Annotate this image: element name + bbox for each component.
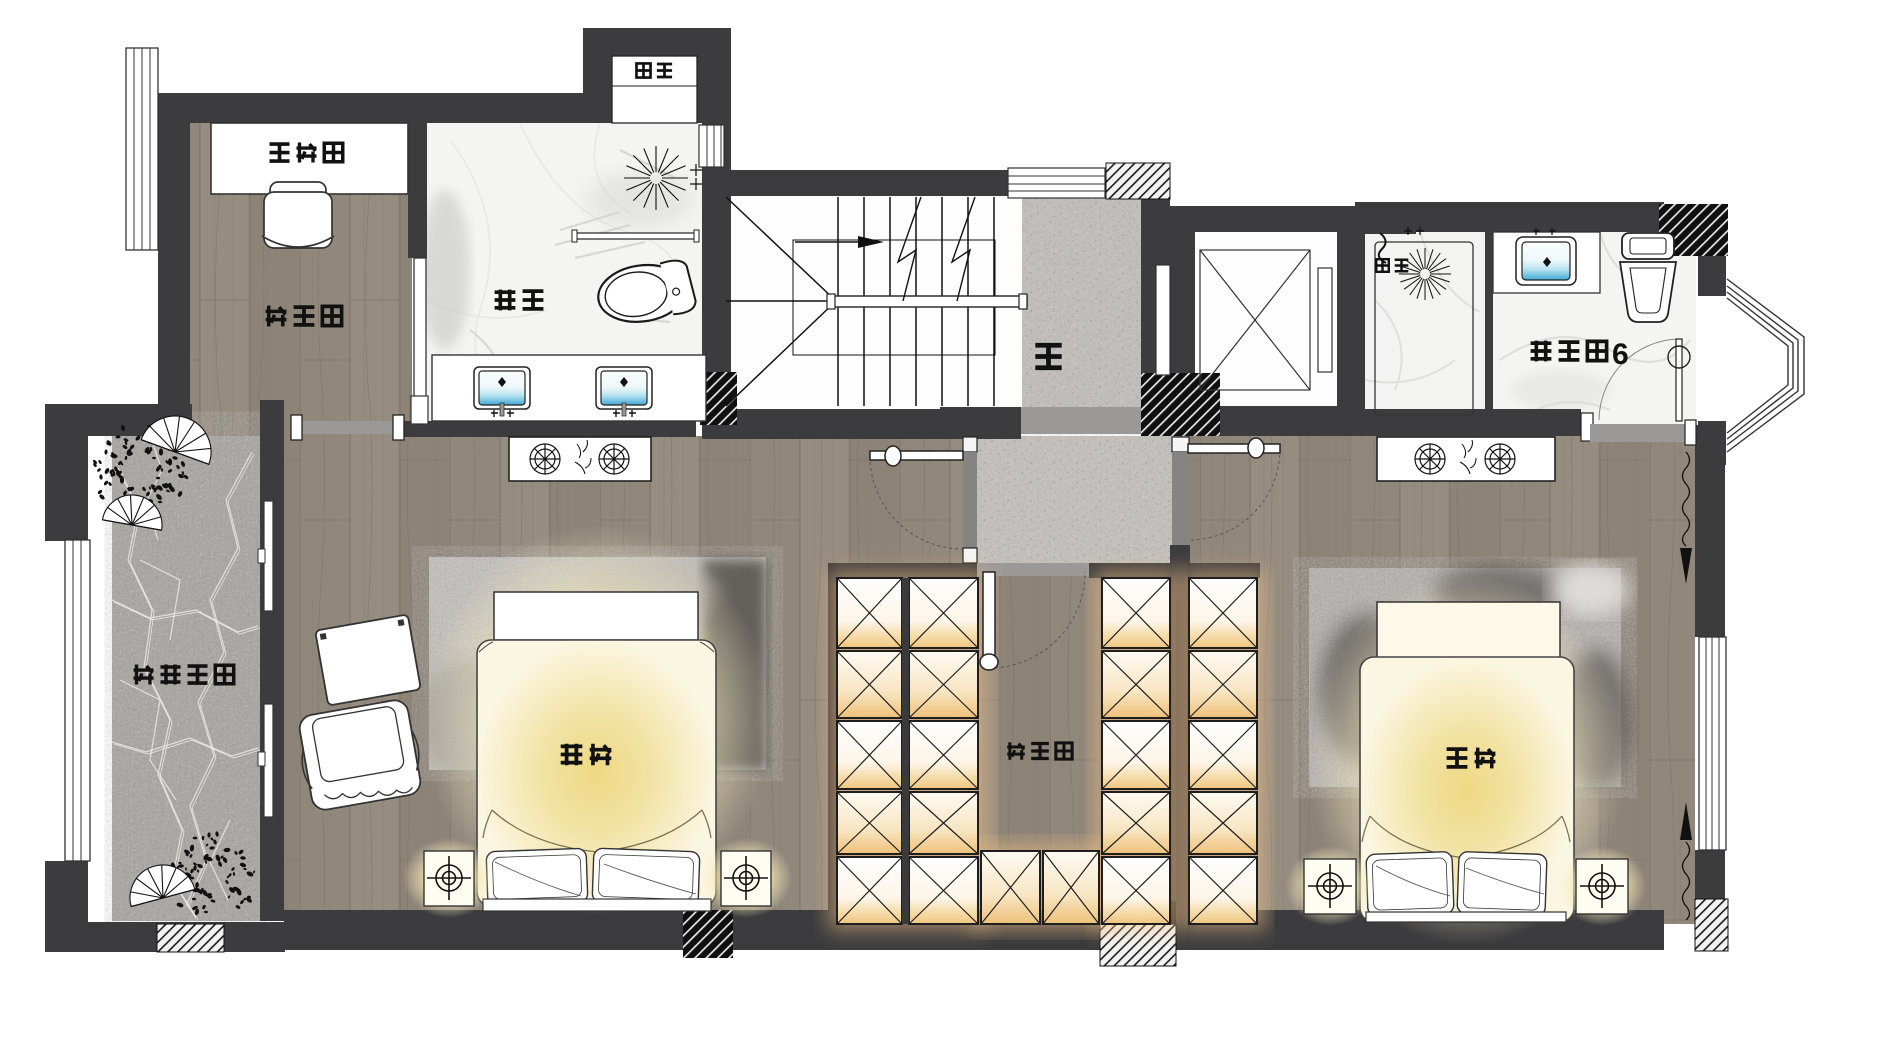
svg-text:6: 6: [1612, 338, 1629, 371]
